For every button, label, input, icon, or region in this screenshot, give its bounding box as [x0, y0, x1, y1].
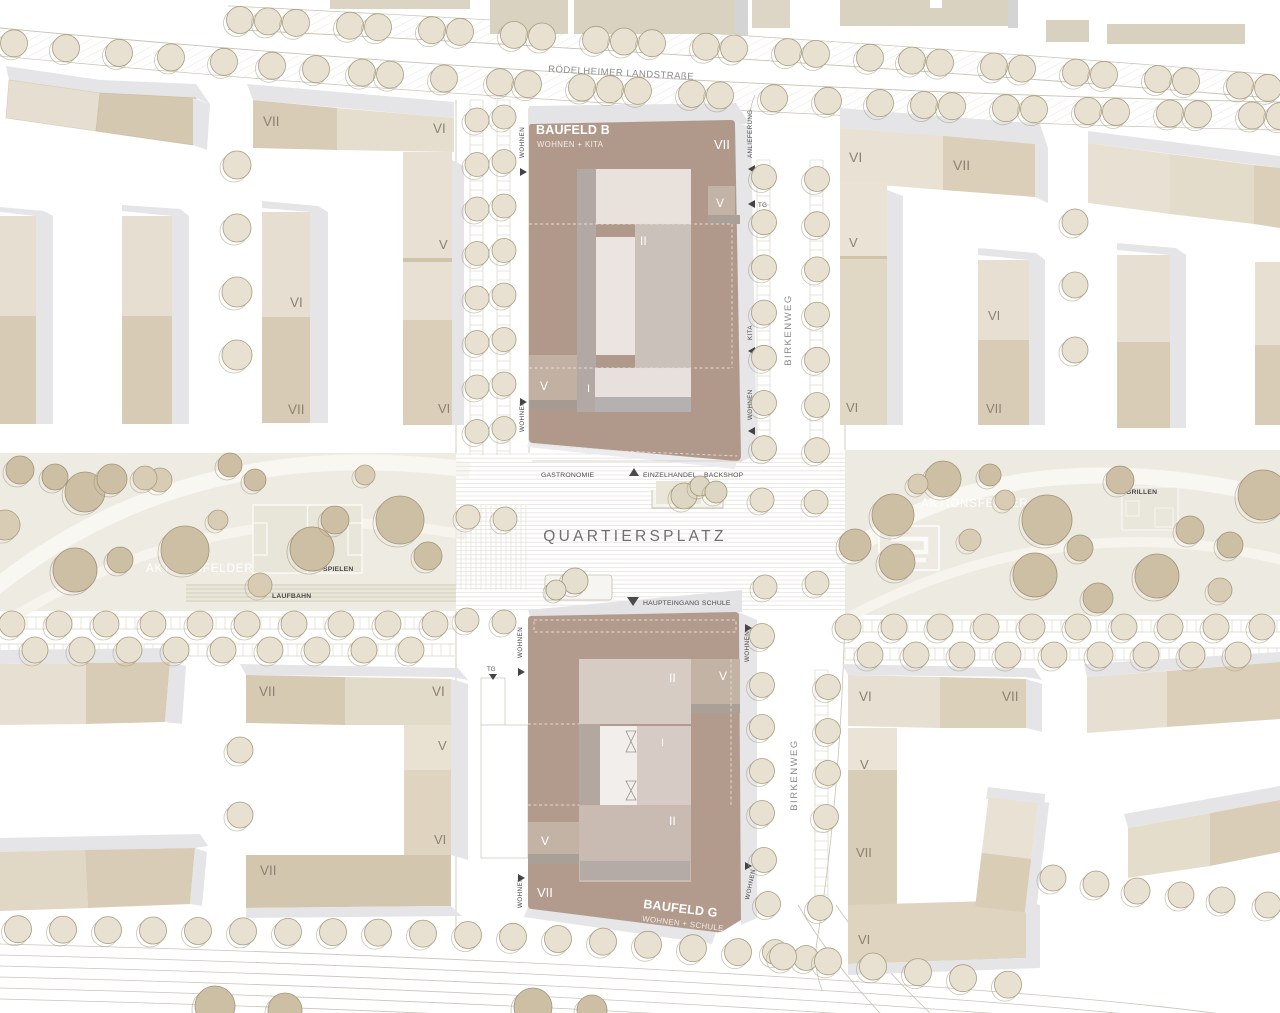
svg-text:V: V [541, 834, 549, 848]
svg-text:BIRKENWEG: BIRKENWEG [789, 739, 800, 811]
svg-text:GASTRONOMIE: GASTRONOMIE [541, 472, 594, 479]
svg-text:VII: VII [537, 885, 553, 900]
svg-text:VI: VI [290, 295, 303, 310]
svg-text:SPIELEN: SPIELEN [323, 566, 353, 573]
svg-text:LAUFBAHN: LAUFBAHN [272, 593, 311, 600]
svg-text:V: V [438, 738, 447, 753]
svg-text:VII: VII [714, 137, 730, 152]
svg-text:VII: VII [1002, 689, 1019, 704]
svg-text:VII: VII [288, 402, 305, 417]
svg-text:TG: TG [758, 202, 767, 209]
svg-text:VI: VI [849, 149, 862, 165]
svg-text:VI: VI [988, 308, 1000, 323]
svg-text:VII: VII [260, 863, 277, 878]
svg-text:VII: VII [953, 157, 970, 173]
svg-text:I: I [587, 383, 590, 395]
svg-text:VII: VII [263, 114, 280, 129]
svg-text:II: II [640, 234, 647, 248]
svg-text:VI: VI [434, 832, 446, 847]
svg-text:ANLIEFERUNG: ANLIEFERUNG [747, 110, 754, 158]
svg-text:WOHNEN: WOHNEN [517, 627, 524, 658]
svg-text:II: II [669, 671, 676, 685]
svg-text:V: V [439, 237, 448, 252]
svg-text:VI: VI [858, 932, 870, 947]
svg-text:TG: TG [487, 666, 496, 673]
svg-text:GRILLEN: GRILLEN [1126, 489, 1157, 496]
svg-text:V: V [716, 196, 724, 210]
svg-text:WOHNEN + KITA: WOHNEN + KITA [537, 140, 604, 149]
svg-text:VI: VI [438, 401, 450, 416]
svg-text:QUARTIERSPLATZ: QUARTIERSPLATZ [543, 528, 726, 545]
svg-text:I: I [661, 737, 664, 749]
svg-text:II: II [669, 814, 676, 828]
svg-text:BACKSHOP: BACKSHOP [704, 472, 744, 479]
svg-text:V: V [849, 235, 858, 250]
svg-text:BAUFELD B: BAUFELD B [536, 123, 610, 137]
svg-text:VII: VII [259, 684, 276, 699]
svg-text:V: V [719, 669, 727, 683]
svg-text:VI: VI [859, 689, 872, 704]
svg-text:HAUPTEINGANG SCHULE: HAUPTEINGANG SCHULE [643, 600, 731, 607]
svg-text:EINZELHANDEL: EINZELHANDEL [643, 472, 697, 479]
svg-text:WOHNEN: WOHNEN [519, 127, 526, 158]
svg-text:VII: VII [986, 401, 1002, 416]
svg-text:V: V [860, 757, 869, 772]
svg-text:V: V [540, 379, 548, 393]
svg-text:VI: VI [432, 684, 445, 699]
svg-text:VI: VI [433, 121, 446, 136]
svg-text:KITA: KITA [747, 325, 754, 340]
svg-text:VI: VI [846, 400, 858, 415]
svg-text:VII: VII [856, 845, 872, 860]
svg-text:BIRKENWEG: BIRKENWEG [783, 294, 794, 366]
